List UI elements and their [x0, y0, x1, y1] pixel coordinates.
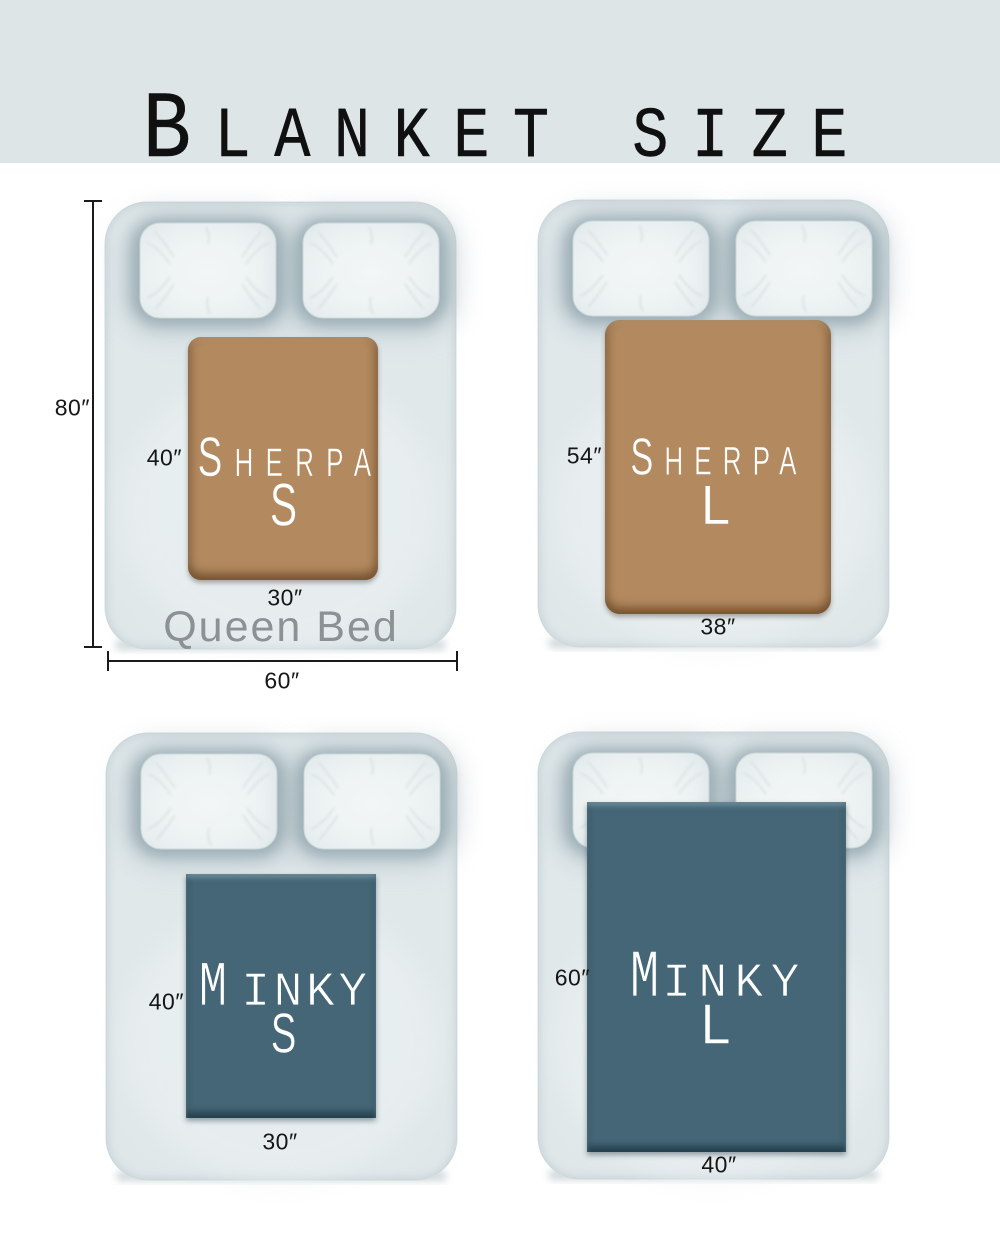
- svg-text:M: M: [199, 952, 227, 1025]
- svg-text:M: M: [630, 940, 659, 1017]
- svg-text:L: L: [701, 475, 730, 537]
- svg-text:S: S: [270, 472, 297, 539]
- svg-text:INKY: INKY: [662, 957, 806, 1011]
- svg-text:INKY: INKY: [241, 966, 371, 1020]
